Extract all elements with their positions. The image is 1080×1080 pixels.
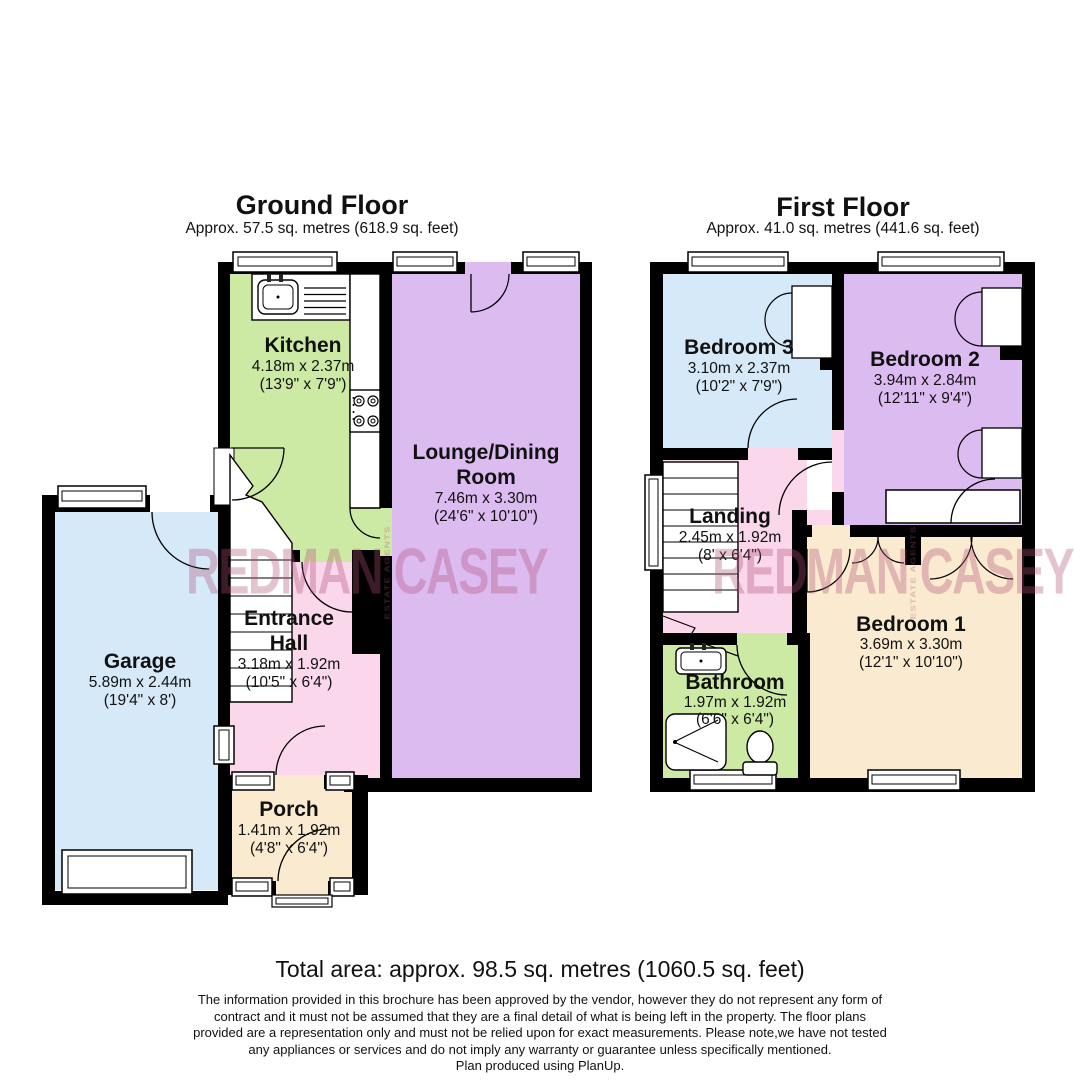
wall — [832, 492, 844, 525]
sink-drain — [277, 296, 280, 299]
wall — [42, 495, 55, 905]
wall — [663, 633, 737, 645]
wall — [798, 633, 810, 778]
window — [645, 475, 663, 570]
window — [688, 252, 788, 272]
wall — [380, 654, 392, 778]
window — [523, 252, 579, 272]
bathroom-label: (6'6" x 6'4") — [696, 711, 774, 728]
bedroom3-label: 3.10m x 2.37m — [688, 360, 791, 377]
hob-knob — [353, 418, 355, 420]
floorplan-svg: Kitchen4.18m x 2.37m(13'9" x 7'9")Lounge… — [0, 0, 1080, 1080]
window — [58, 486, 146, 508]
wall — [352, 775, 368, 895]
window — [232, 772, 274, 790]
wall — [218, 778, 232, 895]
window — [868, 770, 960, 790]
garage-label: (19'4" x 8') — [104, 692, 177, 709]
sink-drain — [700, 660, 703, 663]
kitchen-label: (13'9" x 7'9") — [260, 376, 347, 393]
floorplan-page: Kitchen4.18m x 2.37m(13'9" x 7'9")Lounge… — [0, 0, 1080, 1080]
door-gap — [274, 775, 324, 789]
first-floor-subtitle: Approx. 41.0 sq. metres (441.6 sq. feet) — [613, 220, 1073, 238]
hob-knob — [353, 411, 355, 413]
wall — [850, 525, 1022, 537]
wall — [352, 550, 380, 562]
wall — [218, 505, 230, 728]
wall — [663, 448, 748, 460]
wall — [218, 262, 230, 448]
wall — [832, 262, 844, 430]
wall — [798, 448, 832, 460]
window — [214, 726, 234, 764]
door-gap — [150, 495, 210, 512]
wall-stub — [905, 537, 921, 565]
porch-label: 1.41m x 1.92m — [238, 822, 341, 839]
closet — [982, 428, 1022, 478]
door-gap — [832, 430, 844, 492]
disclaimer-line: contract and it must not be assumed that… — [0, 1009, 1080, 1026]
kitchen-label: Kitchen — [264, 334, 341, 357]
plan-credit: Plan produced using PlanUp. — [0, 1058, 1080, 1075]
garage-label: 5.89m x 2.44m — [89, 674, 192, 691]
chimney-block — [352, 556, 392, 654]
bedroom2-label: (12'11" x 9'4") — [878, 390, 972, 407]
door-gap — [812, 525, 850, 537]
door-step — [272, 895, 332, 907]
entrance-hall-label: Hall — [270, 632, 309, 655]
bedroom1-label: Bedroom 1 — [856, 613, 966, 636]
door-gap — [380, 508, 392, 556]
door-gap — [748, 448, 798, 460]
lounge-label: 7.46m x 3.30m — [435, 490, 538, 507]
wall-stub — [820, 358, 832, 370]
bedroom2-label: 3.94m x 2.84m — [874, 372, 977, 389]
landing-label: Landing — [689, 505, 771, 528]
wall — [650, 262, 663, 475]
first-floor-title: First Floor — [633, 192, 1053, 223]
hob-knob — [353, 397, 355, 399]
ground-floor-subtitle: Approx. 57.5 sq. metres (618.9 sq. feet) — [92, 220, 552, 238]
toilet-bowl — [747, 731, 773, 763]
porch-label: Porch — [259, 798, 319, 821]
lounge-floor — [392, 274, 580, 778]
disclaimer-line: provided are a representation only and m… — [0, 1025, 1080, 1042]
window — [233, 252, 337, 272]
sink-tap — [690, 643, 694, 650]
porch-label: (4'8" x 6'4") — [250, 840, 328, 857]
kitchen-label: 4.18m x 2.37m — [252, 358, 355, 375]
closet — [792, 286, 832, 358]
toilet-cistern — [743, 762, 777, 775]
lounge-label: Room — [456, 466, 516, 489]
sink-tap — [267, 274, 271, 282]
lounge-label: Lounge/Dining — [413, 441, 560, 464]
door-gap — [300, 550, 352, 562]
landing-label: 2.45m x 1.92m — [679, 529, 782, 546]
bedroom3-label: Bedroom 3 — [684, 336, 794, 359]
window — [232, 878, 272, 896]
landing-floor — [807, 510, 832, 525]
window — [393, 252, 457, 272]
entrance-hall-label: 3.18m x 1.92m — [238, 656, 341, 673]
wardrobe — [886, 490, 1020, 523]
ground-floor-title: Ground Floor — [112, 190, 532, 221]
disclaimer-line: any appliances or services and do not im… — [0, 1042, 1080, 1059]
wall — [380, 274, 392, 508]
bathroom-label: Bathroom — [685, 671, 784, 694]
wall — [1022, 262, 1035, 790]
wall — [792, 510, 807, 633]
door-gap — [465, 262, 511, 274]
door-gap — [276, 881, 328, 895]
wall — [580, 262, 592, 790]
footer: Total area: approx. 98.5 sq. metres (106… — [0, 956, 1080, 1075]
landing-label: (8' x 6'4") — [698, 547, 762, 564]
sink-tap — [279, 274, 283, 282]
wall — [292, 550, 300, 562]
total-area-text: Total area: approx. 98.5 sq. metres (106… — [0, 956, 1080, 983]
bathroom-label: 1.97m x 1.92m — [684, 694, 787, 711]
wall — [807, 525, 812, 537]
lounge-label: (24'6" x 10'10") — [434, 508, 538, 525]
shower-head — [673, 740, 677, 744]
wall — [344, 778, 592, 792]
window — [878, 252, 1004, 272]
bedroom1-label: (12'1" x 10'10") — [859, 654, 963, 671]
bedroom1-label: 3.69m x 3.30m — [860, 636, 963, 653]
hob-knob — [353, 404, 355, 406]
disclaimer-line: The information provided in this brochur… — [0, 992, 1080, 1009]
entrance-hall-label: (10'5" x 6'4") — [246, 674, 333, 691]
garage-door — [62, 850, 192, 894]
wall-stub — [1000, 346, 1022, 360]
closet — [982, 288, 1022, 346]
bedroom3-label: (10'2" x 7'9") — [696, 378, 783, 395]
door-gap — [737, 633, 787, 645]
wall — [650, 570, 663, 790]
bedroom2-label: Bedroom 2 — [870, 348, 980, 371]
entrance-hall-label: Entrance — [244, 607, 334, 630]
sink-tap — [702, 643, 706, 650]
garage-label: Garage — [104, 650, 176, 673]
